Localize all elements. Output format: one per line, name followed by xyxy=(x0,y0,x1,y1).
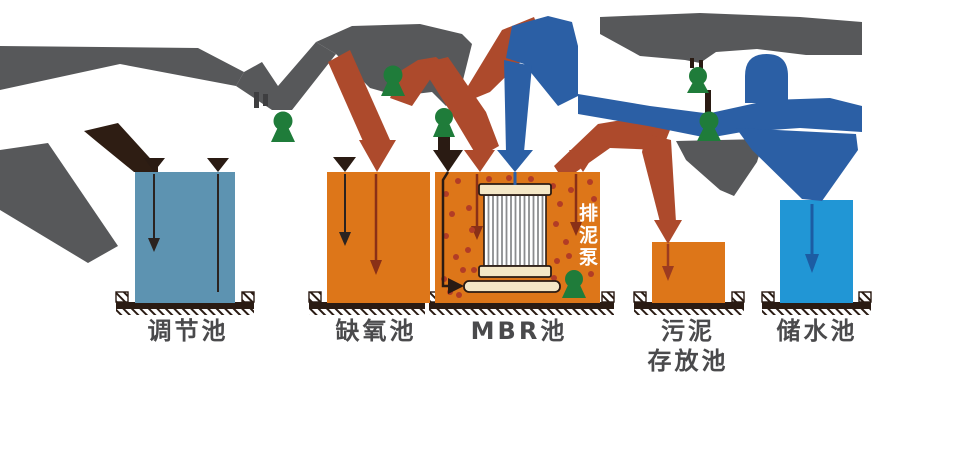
pump-icon-transfer1 xyxy=(271,112,295,143)
tank-label-regulating: 调节池 xyxy=(148,316,229,346)
tank-label-mbr: MBR池 xyxy=(471,316,568,346)
sludge-pump-label: 排泥泵 xyxy=(577,203,596,269)
process-flow-diagram: 排泥泵 调节池 缺氧池 MBR池 污泥 存放池 储水池 xyxy=(0,0,960,476)
blue-suction-stem xyxy=(504,60,532,152)
funnel-regulating-right xyxy=(207,158,229,172)
red-funnel-anoxic xyxy=(359,140,396,172)
pump-hanger-stub xyxy=(690,58,694,68)
tank-label-anoxic: 缺氧池 xyxy=(336,316,417,346)
funnel-anoxic-black xyxy=(333,157,356,172)
influent-pipe-upper xyxy=(0,46,244,90)
tank-regulating xyxy=(135,172,235,303)
air-stem xyxy=(438,135,450,150)
influent-funnel-regulating xyxy=(84,123,158,172)
red-descender-sludge xyxy=(642,134,676,222)
pump-icon-blower xyxy=(433,108,455,137)
disinfection-dome xyxy=(745,54,788,103)
top-right-air-pipe xyxy=(600,13,862,63)
pipe-stub xyxy=(263,94,268,106)
pump-icon-top-right xyxy=(687,67,709,93)
blue-funnel-mbr xyxy=(497,150,533,172)
diagram-canvas xyxy=(0,0,960,476)
tank-label-sludge-storage: 污泥 存放池 xyxy=(648,316,729,376)
membrane-module xyxy=(479,172,551,277)
funnel-mbr-black xyxy=(433,150,463,172)
tank-sludge-storage xyxy=(652,242,725,303)
transfer-pipe-v xyxy=(236,42,336,110)
aeration-header-pipe xyxy=(464,281,560,292)
tank-water-storage xyxy=(780,200,853,303)
tank-label-water-storage: 储水池 xyxy=(777,316,858,346)
red-funnel-mbr-left xyxy=(464,150,495,172)
influent-pipe-lower xyxy=(0,143,118,263)
red-funnel-sludge xyxy=(654,220,682,244)
pipe-stub xyxy=(254,92,259,108)
pump-connector-stub xyxy=(705,90,711,114)
